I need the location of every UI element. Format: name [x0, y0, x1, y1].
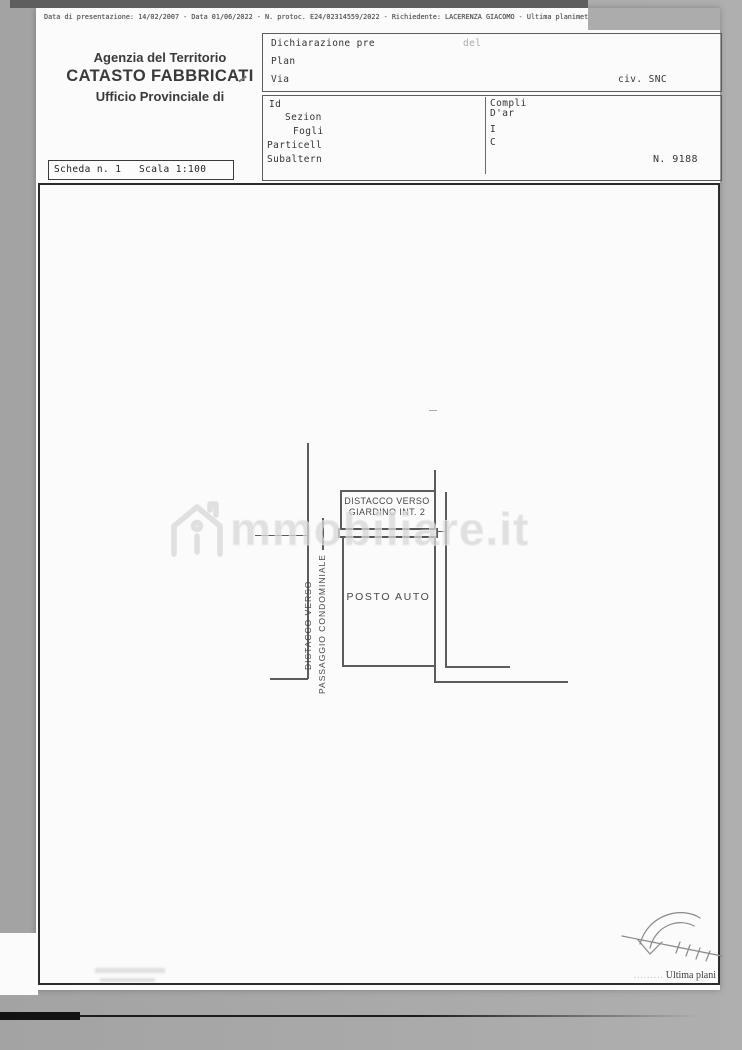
- page-skew-spill: [0, 933, 38, 995]
- bottom-right-caption: ……… Ultima plani: [560, 970, 716, 981]
- giardino-setback-label: DISTACCO VERSO GIARDINO INT. 2: [336, 496, 438, 518]
- right-col-fragment-1: I: [490, 124, 496, 135]
- whiteout-fade: [82, 102, 252, 116]
- presentation-meta-line: Data di presentazione: 14/02/2007 - Data…: [44, 13, 589, 21]
- plan-line-mid-left: [255, 535, 307, 536]
- plan-wall-right-1-elbow: [434, 681, 568, 683]
- signature-squiggle: [620, 898, 728, 973]
- scheda-number: Scheda n. 1: [54, 164, 121, 175]
- plan-wall-section-bar: [338, 528, 438, 538]
- street-label: Via: [271, 74, 289, 85]
- subalterno-label: Subaltern: [267, 154, 322, 165]
- scanned-cadastral-document: Data di presentazione: 14/02/2007 - Data…: [0, 0, 742, 1050]
- planimetria-label: Plan: [271, 56, 295, 67]
- passage-setback-label-line2: PASSAGGIO CONDOMINIALE: [316, 540, 328, 708]
- agency-header: Agenzia del Territorio CATASTO FABBRICAT…: [55, 50, 265, 104]
- sezione-label: Sezion: [285, 112, 322, 123]
- registry-title: CATASTO FABBRICATI: [55, 67, 265, 86]
- scheda-scala-box: Scheda n. 1 Scala 1:100: [48, 160, 234, 180]
- sheet-number: N. 9188: [653, 154, 698, 165]
- giardino-label-line2: GIARDINO INT. 2: [336, 507, 438, 518]
- scan-edge-bar-bottom: [0, 1012, 80, 1020]
- plan-wall-right-2-elbow: [445, 666, 510, 668]
- passage-setback-label-line1: DISTACCO VERSO: [302, 548, 314, 703]
- plan-faint-tick: [429, 410, 437, 411]
- declaration-label: Dichiarazione pre: [271, 38, 375, 49]
- scan-corner-notch: [588, 8, 720, 30]
- agency-name: Agenzia del Territorio: [55, 50, 265, 65]
- scale-value: Scala 1:100: [139, 164, 206, 175]
- bottom-right-caption-text: Ultima plani: [666, 970, 716, 981]
- plan-wall-right-2: [445, 492, 447, 668]
- giardino-label-line1: DISTACCO VERSO: [336, 496, 438, 507]
- giardino-box-top: [340, 490, 435, 492]
- scan-edge-line-bottom: [0, 1015, 700, 1017]
- faint-text-smudge-1: [95, 968, 165, 973]
- foglio-label: Fogli: [293, 126, 324, 137]
- identifiers-label: Id: [269, 99, 281, 110]
- faint-text-smudge-2: [100, 978, 155, 982]
- parking-space-label: POSTO AUTO: [342, 591, 435, 603]
- darco-fragment: D'ar: [490, 108, 514, 119]
- civic-number: civ. SNC: [618, 74, 667, 85]
- right-col-fragment-2: C: [490, 137, 496, 148]
- declaration-date-faint: del: [463, 38, 481, 49]
- parking-stall-bottom: [342, 665, 435, 667]
- plan-border-frame: [38, 183, 720, 985]
- bottom-right-caption-faint: ………: [633, 970, 666, 981]
- particella-label: Particell: [267, 140, 322, 151]
- scan-edge-bar-top: [10, 0, 588, 8]
- declaration-box: Dichiarazione pre del Plan Via civ. SNC: [262, 33, 722, 92]
- identifiers-box-divider: [485, 97, 486, 174]
